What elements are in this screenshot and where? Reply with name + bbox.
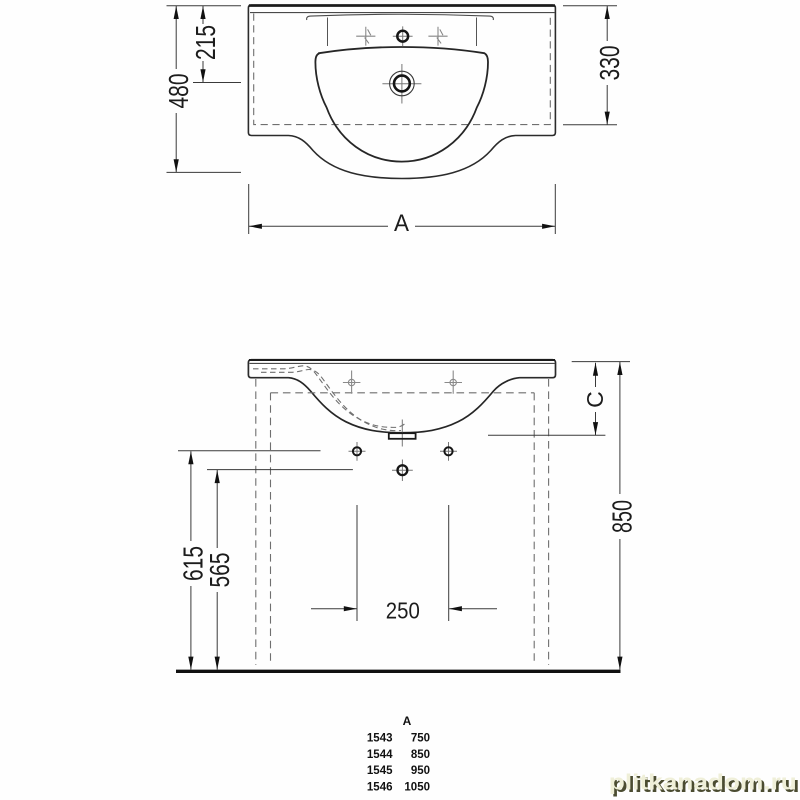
svg-text:1545: 1545: [367, 765, 393, 777]
svg-text:950: 950: [411, 765, 430, 777]
svg-text:A: A: [394, 210, 409, 237]
svg-text:1543: 1543: [367, 733, 393, 745]
svg-text:plitkanadom.ru: plitkanadom.ru: [609, 769, 797, 794]
svg-text:C: C: [582, 391, 608, 408]
svg-text:1546: 1546: [367, 781, 393, 793]
svg-text:750: 750: [411, 733, 430, 745]
svg-text:1050: 1050: [404, 781, 430, 793]
svg-text:850: 850: [411, 749, 430, 761]
svg-text:1544: 1544: [367, 749, 393, 761]
svg-text:215: 215: [190, 25, 221, 60]
svg-text:A: A: [403, 714, 412, 728]
svg-text:565: 565: [204, 553, 235, 588]
svg-text:250: 250: [386, 598, 420, 624]
svg-text:480: 480: [163, 74, 194, 109]
svg-text:850: 850: [607, 500, 638, 533]
svg-text:330: 330: [594, 46, 625, 81]
